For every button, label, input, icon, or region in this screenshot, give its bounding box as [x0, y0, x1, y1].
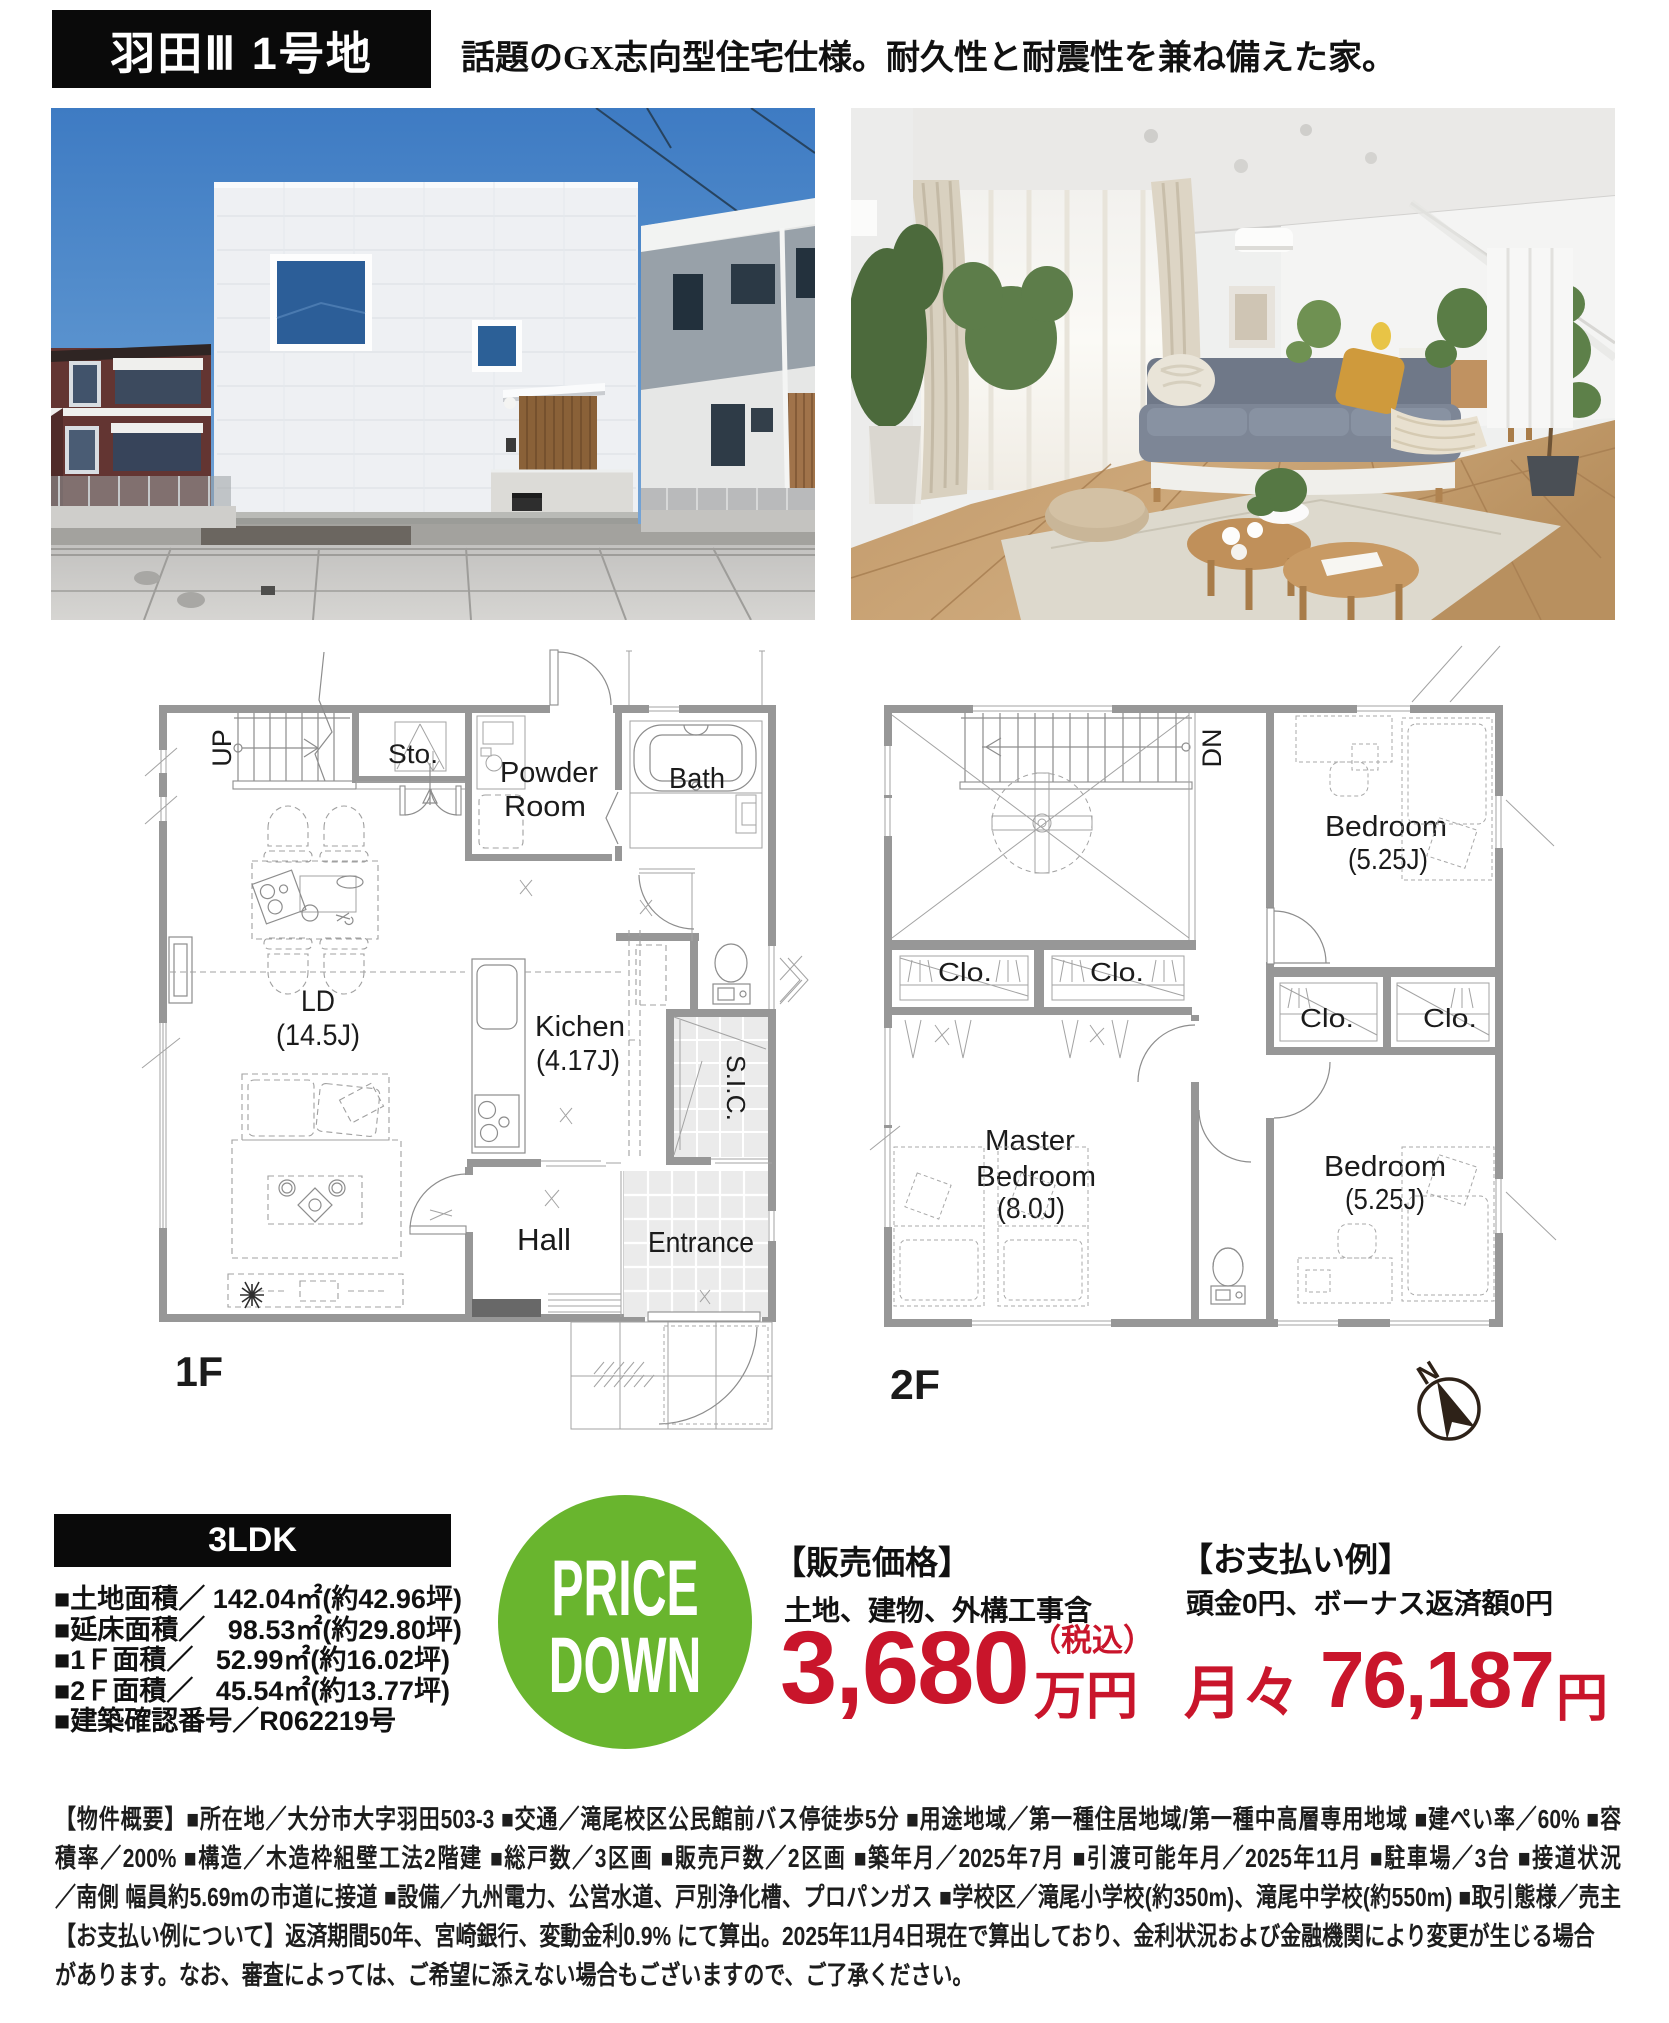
- svg-text:S.I.C.: S.I.C.: [721, 1055, 751, 1121]
- svg-text:Clo.: Clo.: [1423, 1003, 1477, 1033]
- svg-text:(14.5J): (14.5J): [276, 1019, 360, 1052]
- svg-text:Clo.: Clo.: [1300, 1003, 1354, 1033]
- svg-text:(5.25J): (5.25J): [1345, 1184, 1425, 1216]
- svg-text:Clo.: Clo.: [1090, 957, 1144, 987]
- svg-text:Clo.: Clo.: [938, 957, 992, 987]
- svg-text:2F: 2F: [890, 1361, 940, 1408]
- svg-text:Kichen: Kichen: [535, 1011, 625, 1043]
- svg-text:Bedroom: Bedroom: [1325, 811, 1447, 843]
- svg-text:Bedroom: Bedroom: [976, 1161, 1096, 1193]
- svg-text:DN: DN: [1197, 729, 1227, 768]
- svg-text:(4.17J): (4.17J): [536, 1045, 620, 1077]
- svg-text:Master: Master: [985, 1125, 1075, 1157]
- svg-text:Entrance: Entrance: [648, 1227, 754, 1259]
- svg-text:(8.0J): (8.0J): [997, 1193, 1065, 1225]
- svg-text:Bath: Bath: [669, 763, 725, 795]
- svg-text:Room: Room: [504, 791, 586, 823]
- svg-text:Powder: Powder: [500, 757, 598, 789]
- svg-text:Hall: Hall: [517, 1222, 571, 1257]
- svg-text:Bedroom: Bedroom: [1324, 1151, 1446, 1183]
- svg-text:UP: UP: [207, 729, 237, 767]
- svg-text:LD: LD: [301, 985, 335, 1018]
- svg-text:(5.25J): (5.25J): [1348, 844, 1428, 876]
- svg-text:1F: 1F: [175, 1348, 223, 1395]
